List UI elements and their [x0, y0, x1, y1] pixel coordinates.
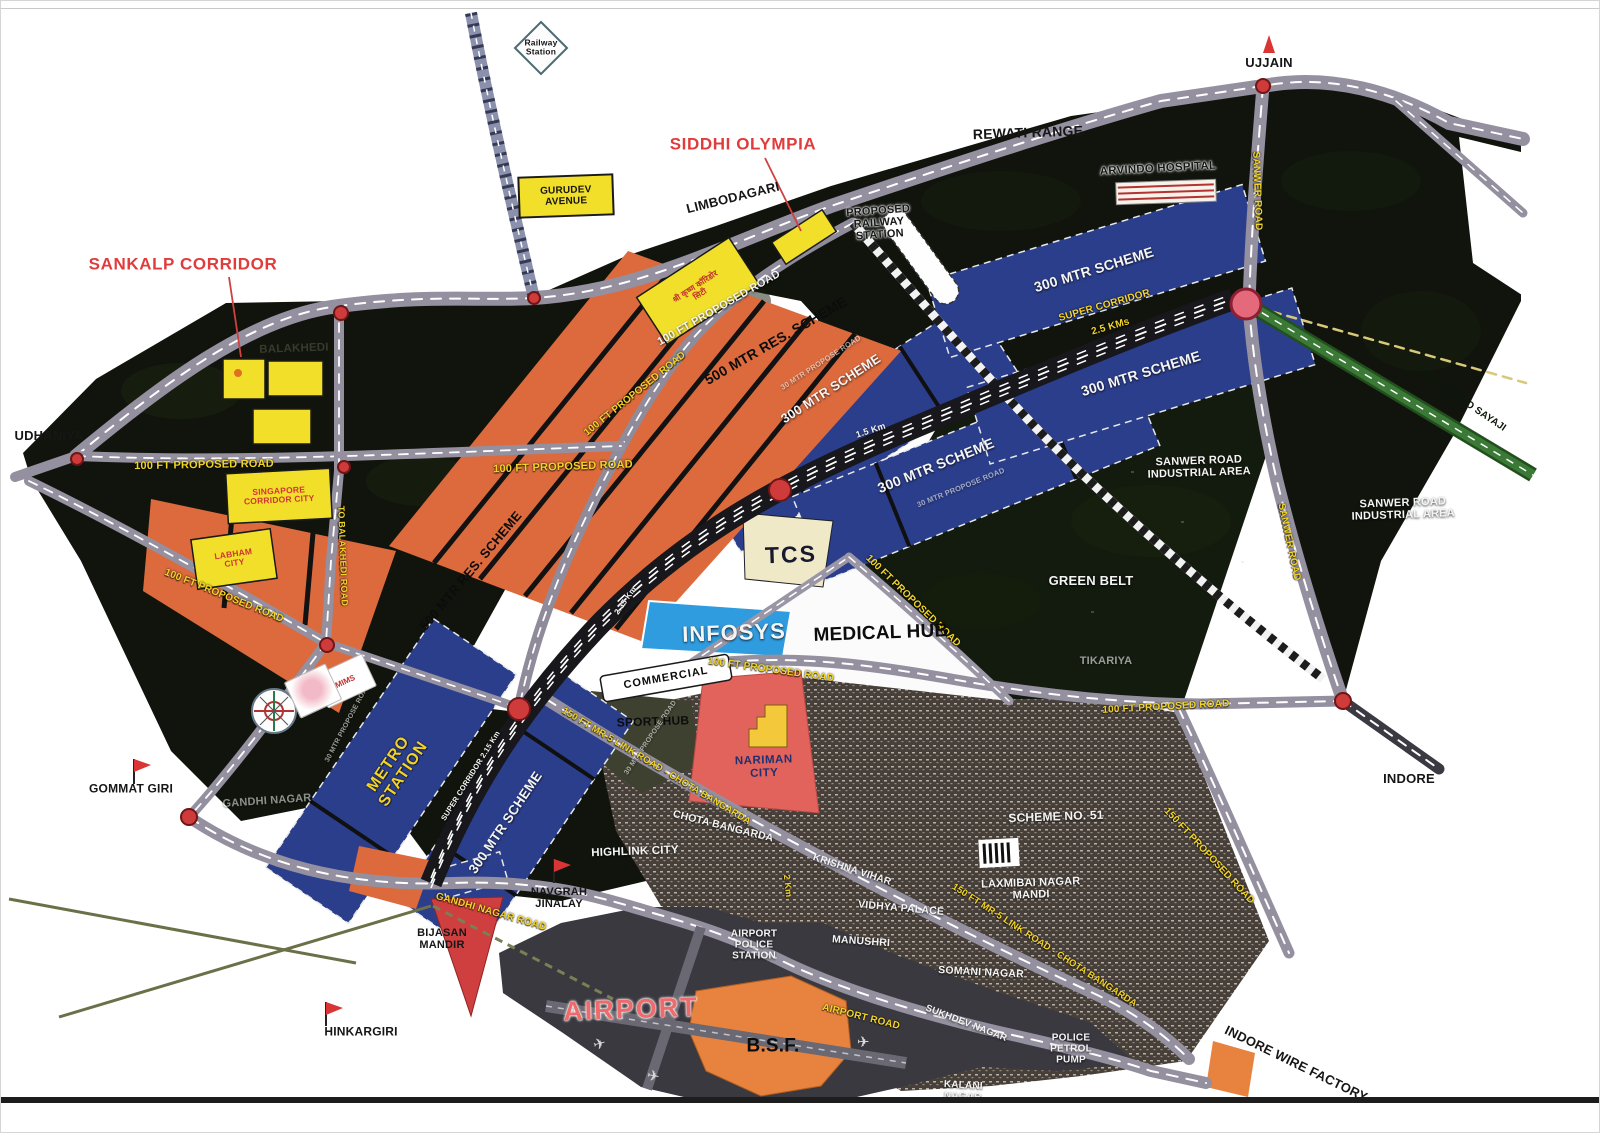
railway-station-diamond: [515, 22, 567, 74]
orange-blob-bottom-right: [1206, 1041, 1255, 1097]
hospital-icon: [1116, 179, 1217, 204]
bijasan-mandir-shape: [431, 897, 503, 1016]
labham-city-box: [191, 529, 277, 590]
plot-box: [268, 361, 323, 396]
plane-icon: ✈: [857, 1034, 870, 1051]
singapore-corridor-box: [226, 468, 332, 523]
flag-icon: [134, 759, 151, 784]
flag-icon: [326, 1002, 343, 1026]
city-plan-map: ✈ ✈ ✈: [0, 0, 1600, 1133]
compass-logo: [252, 689, 296, 733]
scan-top-edge: [1, 8, 1599, 9]
plot-box: [253, 409, 311, 444]
plot-box: [223, 359, 265, 399]
gurudev-avenue-box: [518, 174, 613, 217]
map-graphics: ✈ ✈ ✈: [1, 1, 1600, 1133]
ujjain-arrow-icon: [1263, 35, 1275, 53]
scan-bottom-edge: [1, 1097, 1599, 1103]
mandi-logo: [978, 838, 1019, 868]
